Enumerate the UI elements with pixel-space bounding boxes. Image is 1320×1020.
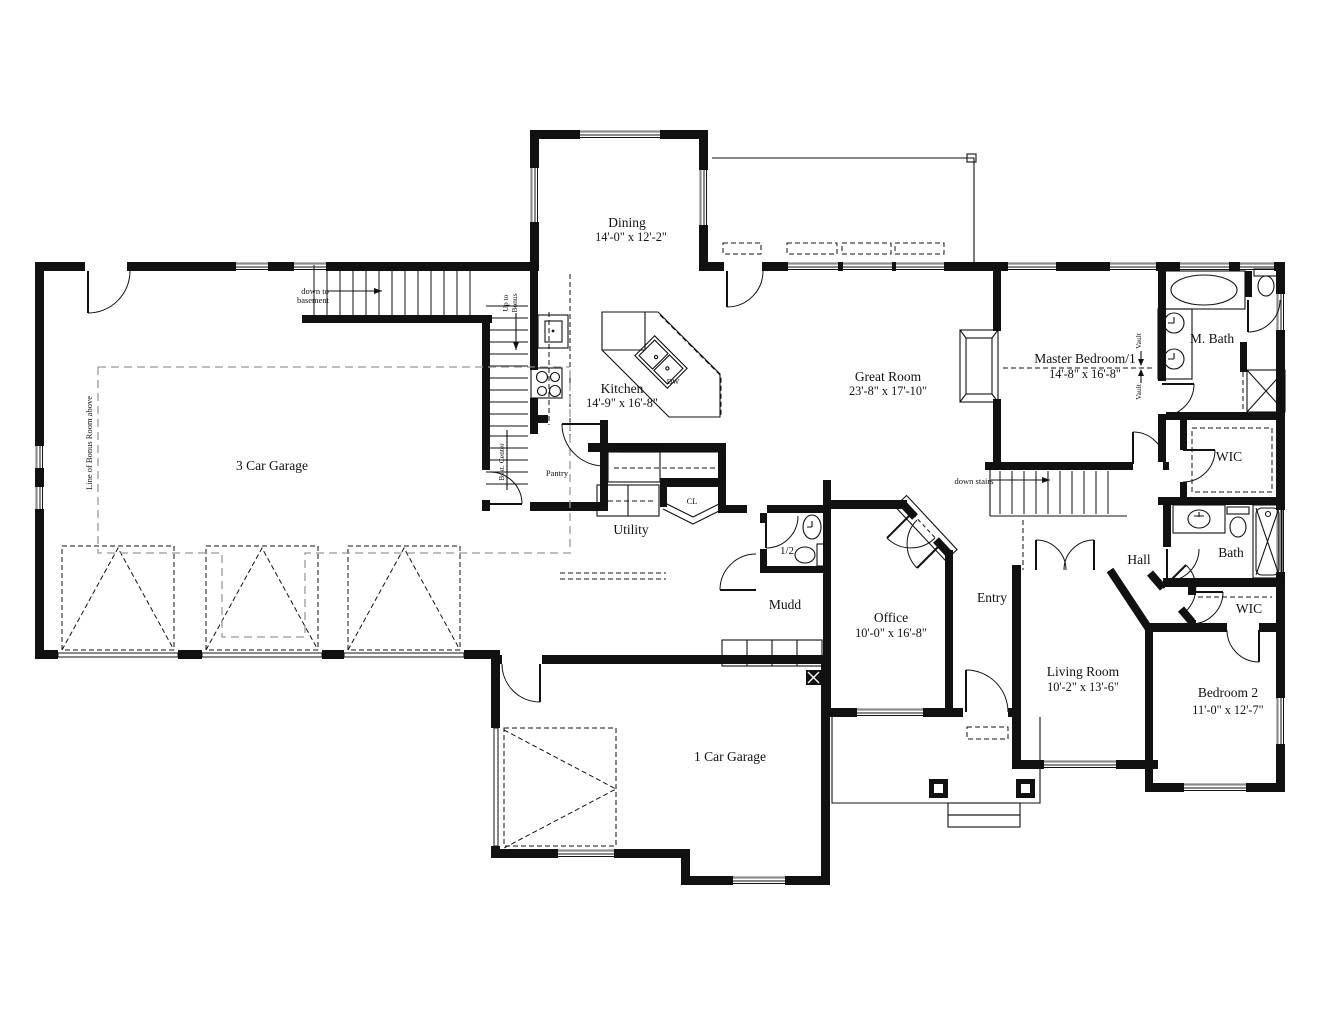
wall-segment bbox=[1240, 342, 1247, 372]
window-icon bbox=[1180, 262, 1229, 271]
door-arc bbox=[490, 472, 522, 504]
window-icon bbox=[1008, 262, 1056, 271]
garage-door-icon bbox=[344, 650, 464, 659]
label-bedroom2-dims: 11'-0" x 12'-7" bbox=[1192, 703, 1263, 717]
label-wic2: WIC bbox=[1236, 601, 1262, 616]
wall-segment bbox=[1158, 414, 1166, 462]
door-arc bbox=[1036, 540, 1066, 570]
floor-plan-page: Dining 14'-0" x 12'-2" Kitchen 14'-9" x … bbox=[0, 0, 1320, 1020]
wall-segment bbox=[1145, 623, 1227, 632]
door-swing-icon bbox=[1227, 630, 1259, 662]
wall-segment bbox=[482, 500, 490, 511]
door-arc bbox=[1167, 549, 1199, 581]
wall-segment bbox=[1110, 570, 1149, 629]
label-bedroom2: Bedroom 2 bbox=[1198, 685, 1258, 700]
patio-outline bbox=[712, 158, 974, 262]
wall-openings bbox=[85, 262, 1008, 717]
label-great-room: Great Room bbox=[855, 369, 922, 384]
door-arc bbox=[766, 516, 798, 548]
refrigerator-icon bbox=[538, 315, 568, 348]
wall-segment bbox=[945, 550, 953, 717]
garage-door-opening bbox=[344, 650, 464, 659]
door-swing-icon bbox=[966, 670, 1008, 712]
half-bath-toilet bbox=[795, 544, 824, 566]
door-arc bbox=[1064, 540, 1094, 570]
dashed-line bbox=[348, 546, 460, 650]
label-bonus: Bonus bbox=[510, 293, 519, 312]
label-down-stairs: down stairs bbox=[955, 476, 994, 486]
door-opening bbox=[963, 708, 1008, 717]
porch-column-core bbox=[934, 784, 943, 793]
label-1-car-garage: 1 Car Garage bbox=[694, 749, 766, 764]
office-transom bbox=[895, 495, 957, 560]
door-opening bbox=[85, 262, 127, 271]
garage-doors bbox=[58, 650, 500, 846]
patio-and-porch-outlines bbox=[712, 154, 1040, 827]
wall-segment bbox=[823, 480, 831, 717]
door-swing-icon bbox=[887, 514, 935, 548]
door-arc bbox=[1227, 630, 1259, 662]
door-arc bbox=[727, 271, 763, 307]
dashed-line bbox=[62, 546, 174, 650]
garage-door-opening bbox=[202, 650, 322, 659]
label-hall: Hall bbox=[1127, 552, 1150, 567]
wall-segment bbox=[1163, 578, 1285, 587]
wall-segment bbox=[530, 270, 538, 370]
wall-segment bbox=[993, 271, 1001, 331]
wall-segment bbox=[1163, 505, 1171, 547]
door-arc bbox=[966, 670, 1008, 712]
window-icon bbox=[843, 262, 892, 271]
door-arc bbox=[1162, 384, 1194, 416]
label-master-bedroom-dims: 14'-8" x 16'-8" bbox=[1049, 367, 1121, 381]
door-leaf bbox=[917, 544, 941, 568]
door-arc bbox=[907, 520, 917, 568]
dashed-line bbox=[206, 546, 318, 650]
fireplace-icon bbox=[960, 330, 998, 402]
range-stove-icon bbox=[531, 368, 562, 398]
door-swing-icon bbox=[490, 472, 522, 504]
label-half-bath: 1/2 bbox=[780, 545, 794, 557]
wall-segment bbox=[1145, 632, 1153, 769]
wall-segment bbox=[302, 315, 492, 323]
label-dining: Dining bbox=[608, 215, 646, 230]
door-arc bbox=[887, 538, 935, 548]
window-icon bbox=[35, 446, 44, 468]
window-icon bbox=[1240, 262, 1274, 271]
wall-segment bbox=[1158, 497, 1285, 505]
dashed-line bbox=[62, 548, 174, 650]
wall-segment bbox=[482, 318, 490, 470]
label-living-room-dims: 10'-2" x 13'-6" bbox=[1047, 680, 1119, 694]
window-icon bbox=[236, 262, 268, 271]
floor-drain-icon bbox=[806, 670, 821, 685]
window-icon bbox=[558, 849, 614, 858]
garage-door-icon bbox=[58, 650, 178, 659]
label-bath: Bath bbox=[1218, 545, 1244, 560]
bath-toilet-icon bbox=[1227, 507, 1249, 537]
window-icon bbox=[857, 708, 923, 717]
door-swing-icon bbox=[502, 664, 540, 702]
wall-segment bbox=[902, 503, 915, 517]
half-bath-sink bbox=[803, 515, 821, 539]
label-pantry: Pantry bbox=[546, 468, 569, 478]
dashed-lines bbox=[62, 243, 1272, 848]
dashed-line bbox=[895, 243, 944, 254]
door-arc bbox=[720, 554, 756, 590]
door-swing-icon bbox=[1162, 384, 1194, 416]
wall-segment bbox=[985, 462, 1133, 470]
door-arc bbox=[1248, 300, 1280, 332]
label-vault-lower: Vault bbox=[1134, 383, 1143, 400]
door-arc bbox=[88, 271, 130, 313]
wall-segment bbox=[1259, 623, 1285, 632]
porch-step bbox=[948, 815, 1020, 827]
window-icon bbox=[733, 876, 785, 885]
wall-segment bbox=[767, 505, 830, 513]
label-entry: Entry bbox=[977, 590, 1007, 605]
door-opening bbox=[502, 655, 542, 664]
door-swing-icon bbox=[720, 554, 756, 590]
window-icon bbox=[1110, 262, 1156, 271]
wall-segment bbox=[1150, 573, 1163, 588]
label-3-car-garage: 3 Car Garage bbox=[236, 458, 308, 473]
window-icon bbox=[1044, 760, 1116, 769]
wall-segment bbox=[530, 502, 608, 511]
master-tub-icon bbox=[1163, 271, 1245, 309]
door-opening bbox=[724, 262, 762, 271]
wall-segment bbox=[1012, 565, 1021, 769]
bskt-center-shelves bbox=[486, 430, 528, 490]
label-living-room: Living Room bbox=[1047, 664, 1120, 679]
label-utility: Utility bbox=[613, 522, 649, 537]
dashed-line bbox=[842, 243, 891, 254]
label-office-dims: 10'-0" x 16'-8" bbox=[855, 626, 927, 640]
dashed-line bbox=[348, 548, 460, 650]
door-arc bbox=[502, 664, 540, 702]
window-icon bbox=[699, 170, 708, 225]
label-up-to: Up to bbox=[501, 294, 510, 311]
label-closet: CL bbox=[687, 496, 698, 506]
window-icon bbox=[580, 130, 660, 139]
window-icon bbox=[896, 262, 944, 271]
door-swing-icon bbox=[1167, 549, 1199, 581]
door-swing-icon bbox=[88, 271, 130, 313]
door-arc bbox=[1183, 450, 1215, 482]
wall-segment bbox=[1163, 462, 1169, 470]
wall-segment bbox=[993, 399, 1001, 468]
door-swing-icon bbox=[766, 516, 798, 548]
door-swing-icon bbox=[1183, 450, 1215, 482]
label-master-wic: WIC bbox=[1216, 449, 1242, 464]
label-office: Office bbox=[874, 610, 908, 625]
window-icon bbox=[35, 487, 44, 509]
dashed-line bbox=[723, 243, 761, 254]
label-mudd: Mudd bbox=[769, 597, 802, 612]
porch-step bbox=[948, 803, 1020, 815]
dashed-line bbox=[206, 548, 318, 650]
wall-segment bbox=[497, 655, 830, 664]
label-dining-dims: 14'-0" x 12'-2" bbox=[595, 230, 667, 244]
window-icon bbox=[294, 262, 326, 271]
garage-door-opening bbox=[491, 728, 500, 846]
window-icon bbox=[1184, 783, 1246, 792]
label-master-bedroom: Master Bedroom/1 bbox=[1034, 351, 1136, 366]
label-master-bath: M. Bath bbox=[1190, 331, 1235, 346]
window-icon bbox=[1276, 510, 1285, 572]
door-leaf bbox=[887, 514, 911, 538]
stair-rail bbox=[990, 470, 1127, 516]
dashed-line bbox=[504, 730, 616, 848]
label-bonus-room-line: Line of Bonus Room above bbox=[84, 396, 94, 490]
wall-segment bbox=[1245, 271, 1252, 297]
label-dishwasher: DW bbox=[667, 377, 680, 386]
bonus-room-dashed-line bbox=[98, 367, 570, 637]
bath-vanity-sink bbox=[1173, 505, 1225, 533]
window-icon bbox=[788, 262, 838, 271]
door-swings bbox=[88, 271, 1280, 712]
dashed-line bbox=[967, 727, 1008, 739]
garage-door-icon bbox=[491, 728, 500, 846]
dashed-line bbox=[787, 243, 837, 254]
label-bskt-center: Bskt. Center bbox=[497, 443, 506, 481]
floor-plan-drawing: Dining 14'-0" x 12'-2" Kitchen 14'-9" x … bbox=[0, 0, 1320, 1020]
wall-segment bbox=[530, 415, 548, 423]
window-icon bbox=[1276, 698, 1285, 744]
wall-segment bbox=[600, 420, 608, 510]
door-swing-icon bbox=[1064, 540, 1094, 570]
room-labels: Dining 14'-0" x 12'-2" Kitchen 14'-9" x … bbox=[84, 215, 1264, 764]
label-vault-upper: Vault bbox=[1134, 332, 1143, 349]
label-kitchen: Kitchen bbox=[601, 381, 644, 396]
label-kitchen-dims: 14'-9" x 16'-8" bbox=[586, 396, 658, 410]
dashed-line bbox=[504, 728, 616, 846]
garage-door-opening bbox=[58, 650, 178, 659]
wall-segment bbox=[491, 655, 500, 730]
garage-door-icon bbox=[202, 650, 322, 659]
label-great-room-dims: 23'-8" x 17'-10" bbox=[849, 384, 927, 398]
label-basement: basement bbox=[297, 295, 330, 305]
door-swing-icon bbox=[727, 271, 763, 307]
master-toilet-icon bbox=[1254, 269, 1278, 296]
door-swing-icon bbox=[1248, 300, 1280, 332]
wall-segment bbox=[823, 500, 907, 509]
wall-segment bbox=[760, 566, 827, 573]
porch-column-core bbox=[1021, 784, 1030, 793]
wall-segment bbox=[1180, 420, 1187, 450]
wall-segment bbox=[1166, 412, 1285, 420]
door-swing-icon bbox=[1036, 540, 1066, 570]
window-icon bbox=[530, 168, 539, 222]
